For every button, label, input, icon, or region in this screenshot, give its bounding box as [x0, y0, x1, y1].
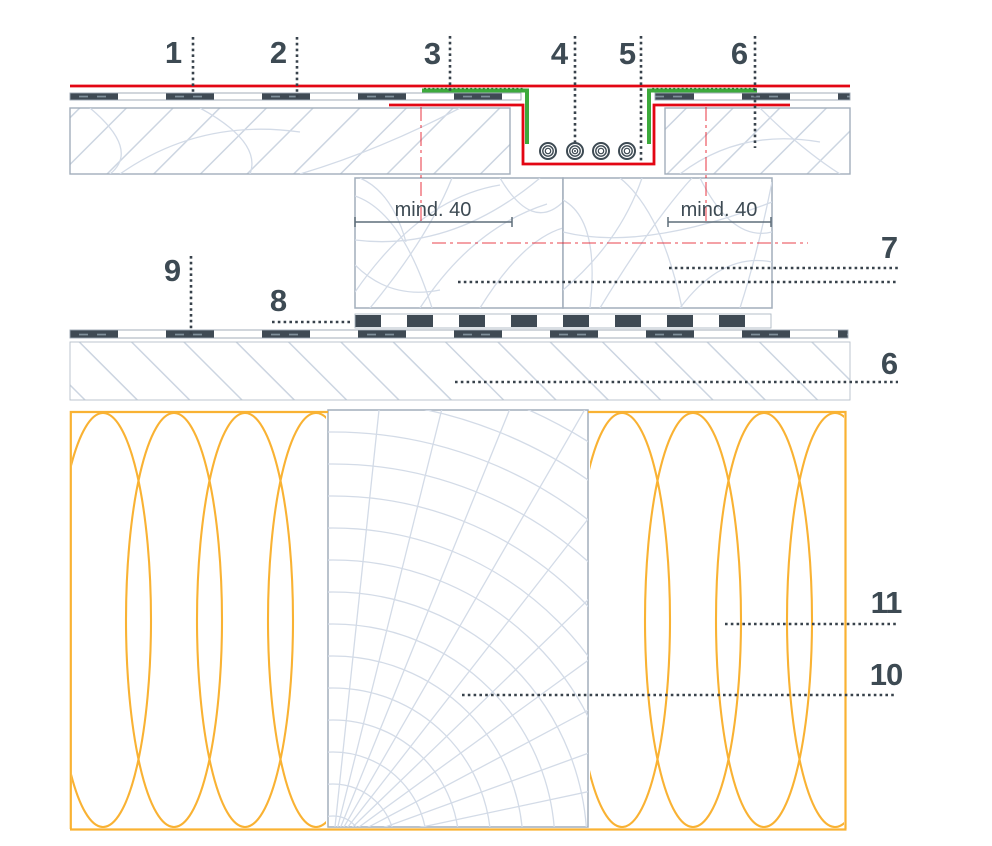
detail-drawing-svg: mind. 40 mind. 40 1 2 3 4 5 6 7 8 9 6 11… [0, 0, 992, 846]
cable-cross-section [540, 143, 556, 159]
top-slab-left [70, 108, 510, 174]
sheathing-band [70, 342, 850, 400]
separation-membrane [70, 330, 848, 338]
callout-6-top: 6 [731, 36, 748, 71]
cable-cross-section [619, 143, 635, 159]
callout-6-mid: 6 [881, 346, 898, 381]
vapour-membrane-left [70, 93, 521, 100]
bearing-strip [355, 314, 771, 328]
dimension-label: mind. 40 [681, 199, 758, 221]
callout-10: 10 [870, 657, 902, 692]
callout-3: 3 [424, 36, 441, 71]
cable-cross-sections [540, 143, 635, 159]
callout-2: 2 [270, 35, 286, 70]
cable-cross-section [567, 143, 583, 159]
insulation-right [574, 413, 883, 827]
insulation-left [55, 413, 364, 827]
dimension-label: mind. 40 [395, 199, 472, 221]
callout-7: 7 [881, 230, 897, 265]
callout-4: 4 [551, 36, 569, 71]
cable-cross-section [593, 143, 609, 159]
construction-detail-diagram: mind. 40 mind. 40 1 2 3 4 5 6 7 8 9 6 11… [0, 0, 992, 846]
callout-1: 1 [165, 35, 182, 70]
callout-11: 11 [871, 585, 903, 620]
callout-5: 5 [619, 36, 636, 71]
callout-9: 9 [164, 253, 181, 288]
callout-8: 8 [270, 283, 287, 318]
top-slab-right [665, 108, 850, 174]
vapour-membrane-right [655, 93, 850, 100]
